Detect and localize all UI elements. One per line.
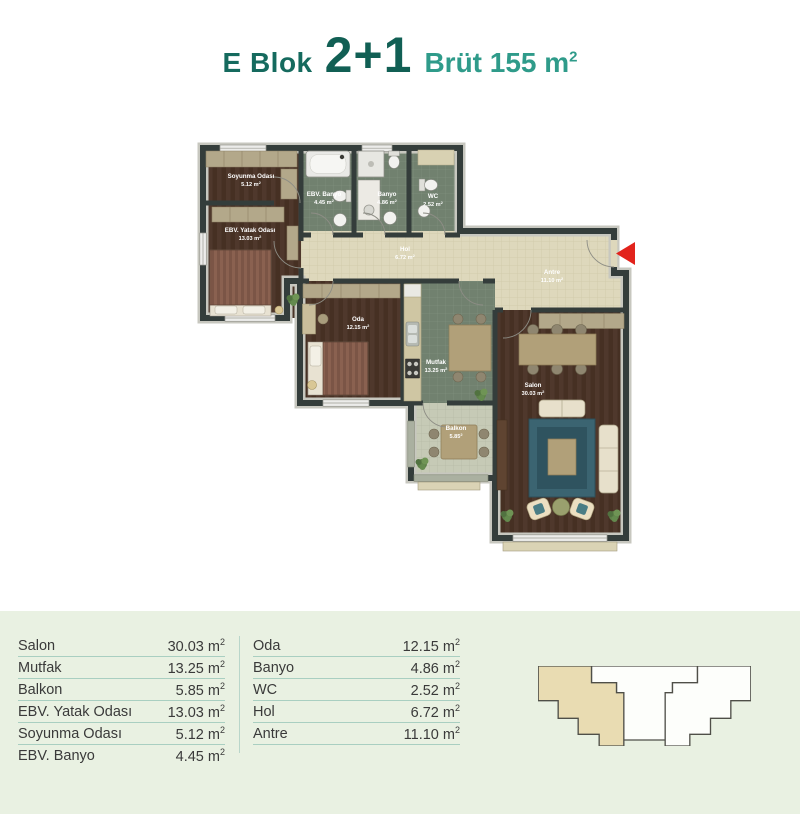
table-divider [239, 636, 240, 753]
area-row-wc: WC2.52 m2 [253, 679, 460, 701]
block-footprint-svg [538, 666, 751, 746]
page-title: E Blok 2+1 Brüt 155 m2 [0, 26, 800, 84]
title-gross-area: Brüt 155 m2 [424, 47, 577, 79]
block-footprint [538, 666, 751, 746]
balkon-railing-bottom [414, 475, 488, 482]
area-row-salon: Salon30.03 m2 [18, 635, 225, 657]
area-row-ebv-yatak: EBV. Yatak Odası13.03 m2 [18, 701, 225, 723]
area-row-ebv-banyo: EBV. Banyo4.45 m2 [18, 745, 225, 766]
area-table-band: Salon30.03 m2 Mutfak13.25 m2 Balkon5.85 … [0, 611, 800, 814]
area-row-mutfak: Mutfak13.25 m2 [18, 657, 225, 679]
area-row-banyo: Banyo4.86 m2 [253, 657, 460, 679]
floor-plan: Soyunma Odası5.12 m2 EBV. Yatak Odası13.… [190, 138, 645, 578]
salon-terrace-ledge [503, 542, 617, 551]
title-block-name: E Blok [222, 47, 312, 79]
balkon-ledge [418, 482, 480, 490]
area-table-left: Salon30.03 m2 Mutfak13.25 m2 Balkon5.85 … [18, 635, 225, 766]
area-row-oda: Oda12.15 m2 [253, 635, 460, 657]
area-row-soyunma: Soyunma Odası5.12 m2 [18, 723, 225, 745]
area-row-balkon: Balkon5.85 m2 [18, 679, 225, 701]
brochure-page: E Blok 2+1 Brüt 155 m2 [0, 0, 800, 814]
balkon-railing-left [408, 421, 415, 467]
title-unit-type: 2+1 [325, 26, 413, 84]
area-row-antre: Antre11.10 m2 [253, 723, 460, 745]
area-table-right: Oda12.15 m2 Banyo4.86 m2 WC2.52 m2 Hol6.… [253, 635, 460, 745]
floor-plan-svg: Soyunma Odası5.12 m2 EBV. Yatak Odası13.… [190, 138, 645, 578]
area-row-hol: Hol6.72 m2 [253, 701, 460, 723]
